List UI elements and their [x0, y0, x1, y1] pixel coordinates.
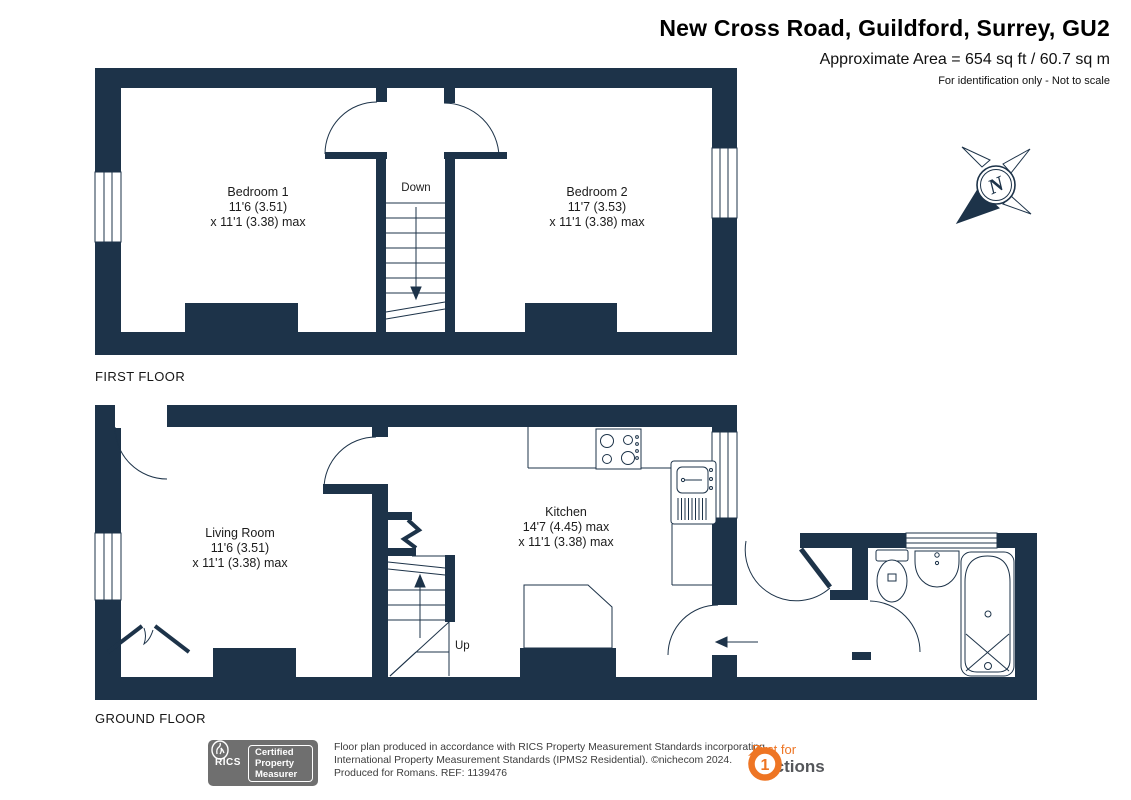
page-title: New Cross Road, Guildford, Surrey, GU2: [659, 15, 1110, 42]
title-block: New Cross Road, Guildford, Surrey, GU2 A…: [659, 15, 1110, 87]
first-for-auctions-logo: 1 First for Auctions: [746, 743, 825, 775]
disclaimer: For identification only - Not to scale: [659, 75, 1110, 87]
rics-certified-text: Certified Property Measurer: [248, 745, 313, 782]
room-label-kitchen: Kitchen 14'7 (4.45) max x 11'1 (3.38) ma…: [518, 505, 613, 550]
stairs-up-label: Up: [455, 640, 470, 652]
floorplan-page: N New Cross Road, Guildford, Surrey, GU2…: [0, 0, 1131, 800]
auctions-icon: 1: [746, 743, 784, 783]
first-floor-stairs: [325, 102, 499, 319]
svg-text:1: 1: [761, 757, 770, 774]
rics-certified-badge: RICS Certified Property Measurer: [208, 740, 318, 786]
first-floor-label: FIRST FLOOR: [95, 369, 185, 384]
room-label-living-room: Living Room 11'6 (3.51) x 11'1 (3.38) ma…: [192, 526, 287, 571]
floorplan-svg: N: [0, 0, 1131, 800]
room-label-bedroom2: Bedroom 2 11'7 (3.53) x 11'1 (3.38) max: [549, 185, 644, 230]
room-label-bedroom1: Bedroom 1 11'6 (3.51) x 11'1 (3.38) max: [210, 185, 305, 230]
compass-icon: N: [957, 147, 1031, 223]
rics-lion-icon: RICS: [208, 758, 248, 768]
approximate-area: Approximate Area = 654 sq ft / 60.7 sq m: [659, 51, 1110, 69]
ground-floor-label: GROUND FLOOR: [95, 711, 206, 726]
footer-disclaimer-text: Floor plan produced in accordance with R…: [334, 741, 765, 781]
stairs-down-label: Down: [401, 182, 430, 194]
